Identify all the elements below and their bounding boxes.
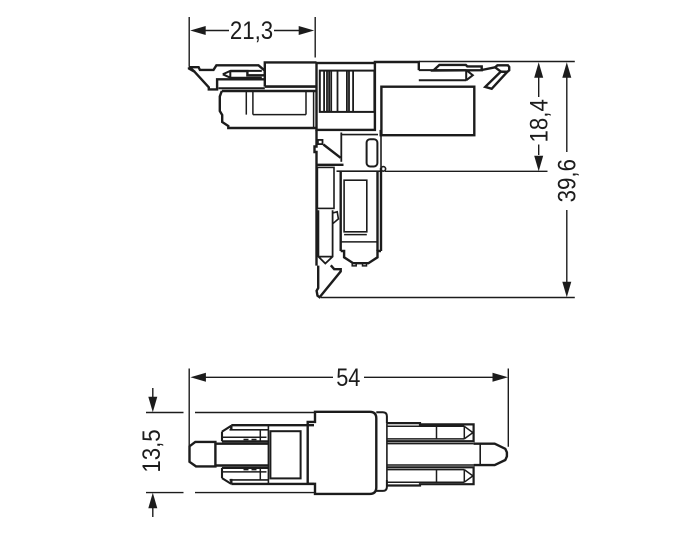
svg-text:39,6: 39,6 [554,159,581,202]
svg-text:21,3: 21,3 [230,18,273,45]
svg-text:54: 54 [336,364,360,392]
svg-text:18,4: 18,4 [526,99,553,142]
svg-text:13,5: 13,5 [139,429,166,472]
